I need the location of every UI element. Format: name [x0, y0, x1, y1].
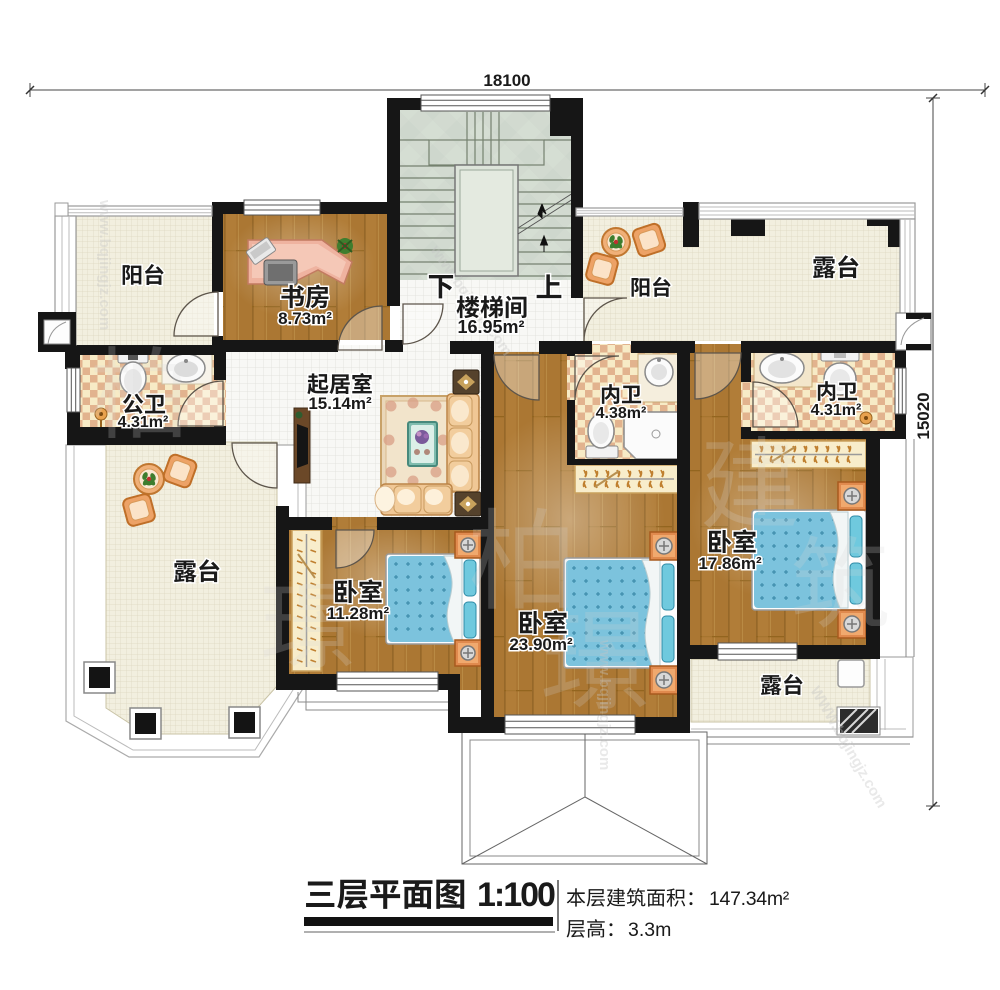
- svg-text:15020: 15020: [914, 392, 933, 439]
- svg-text:15.14m²: 15.14m²: [308, 394, 372, 413]
- svg-text:16.95m²: 16.95m²: [457, 317, 524, 337]
- svg-text:1:100: 1:100: [477, 876, 555, 914]
- svg-text:18100: 18100: [483, 71, 530, 90]
- svg-text:147.34m²: 147.34m²: [709, 888, 790, 910]
- svg-text:11.28m²: 11.28m²: [327, 604, 390, 623]
- svg-text:4.31m²: 4.31m²: [811, 402, 862, 419]
- svg-text:4.31m²: 4.31m²: [118, 414, 169, 431]
- svg-text:23.90m²: 23.90m²: [509, 635, 573, 654]
- svg-text:17.86m²: 17.86m²: [698, 554, 762, 573]
- svg-text:4.38m²: 4.38m²: [596, 405, 647, 422]
- svg-text:8.73m²: 8.73m²: [278, 309, 332, 328]
- svg-text:www.bqjingjz.com: www.bqjingjz.com: [96, 199, 113, 330]
- svg-text:www.bqjingjz.com: www.bqjingjz.com: [596, 639, 613, 770]
- svg-text:3.3m: 3.3m: [628, 919, 671, 941]
